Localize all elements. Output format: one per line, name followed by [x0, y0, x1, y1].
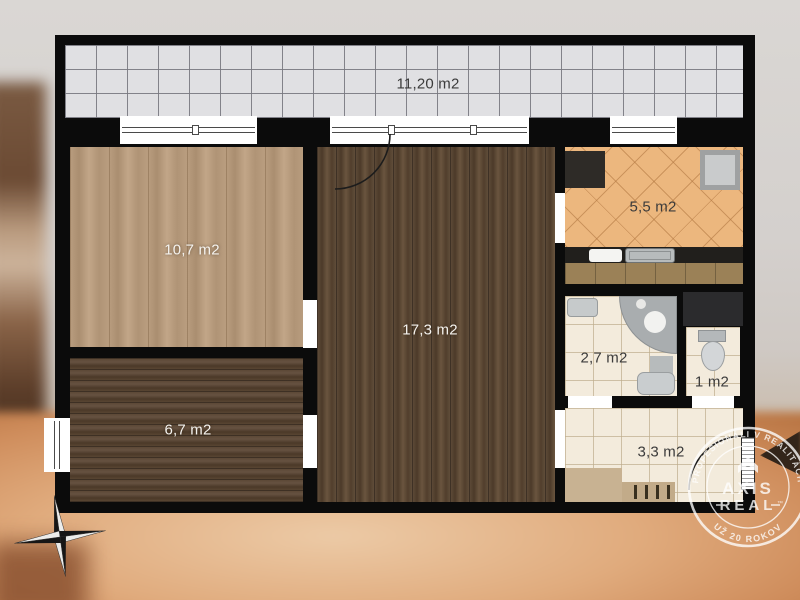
door-opening-kitchen: [555, 193, 565, 243]
kitchen-corner-counter: [565, 151, 605, 188]
side-window: [44, 418, 70, 472]
entrance-door: [741, 437, 755, 490]
door-opening-hall: [555, 410, 565, 468]
balcony-door-window: [330, 116, 529, 144]
compass-icon: [10, 492, 114, 584]
window-glass: [332, 127, 527, 133]
window-glass: [612, 127, 675, 133]
wardrobe: [565, 468, 622, 502]
door-opening-small-room: [303, 415, 317, 468]
area-label-small-room: 6,7 m2: [164, 422, 211, 439]
shower-valve-icon: [636, 299, 646, 309]
window-mullion: [388, 125, 395, 135]
window-glass: [122, 127, 255, 133]
background-furniture-blur: [0, 82, 46, 434]
kitchen-cabinets: [565, 263, 743, 284]
door-opening-wc: [692, 396, 734, 408]
bathroom-sink: [567, 298, 598, 317]
area-label-balcony: 11,20 m2: [396, 76, 459, 93]
toilet-bowl: [701, 341, 725, 371]
window-mullion: [192, 125, 199, 135]
fridge: [700, 150, 740, 190]
area-label-wc: 1 m2: [695, 374, 729, 391]
door-opening-bathroom: [568, 396, 612, 408]
area-label-kitchen: 5,5 m2: [629, 199, 676, 216]
door-opening-bedroom: [303, 300, 317, 348]
window-mullion: [470, 125, 477, 135]
floorplan-screenshot: 11,20 m2 10,7 m2 17,3 m2 5,5 m2 2,7 m2 1…: [0, 0, 800, 600]
wardrobe-rail: [622, 482, 675, 502]
room-bathroom-floor: [565, 296, 677, 396]
area-label-bathroom: 2,7 m2: [580, 350, 627, 367]
area-label-living-room: 17,3 m2: [402, 322, 458, 339]
area-label-bedroom: 10,7 m2: [164, 242, 220, 259]
window-glass: [54, 421, 60, 469]
kitchen-sink: [589, 249, 622, 262]
kitchen-window: [610, 116, 677, 144]
corner-shower: [619, 296, 677, 354]
washing-machine: [637, 372, 675, 395]
area-label-hall: 3,3 m2: [637, 444, 684, 461]
floorplan: 11,20 m2 10,7 m2 17,3 m2 5,5 m2 2,7 m2 1…: [55, 35, 755, 513]
shower-head-icon: [644, 311, 666, 333]
utility-shaft: [683, 292, 743, 326]
window: [120, 116, 257, 144]
room-kitchen-floor: [565, 147, 743, 284]
stove: [625, 248, 675, 263]
